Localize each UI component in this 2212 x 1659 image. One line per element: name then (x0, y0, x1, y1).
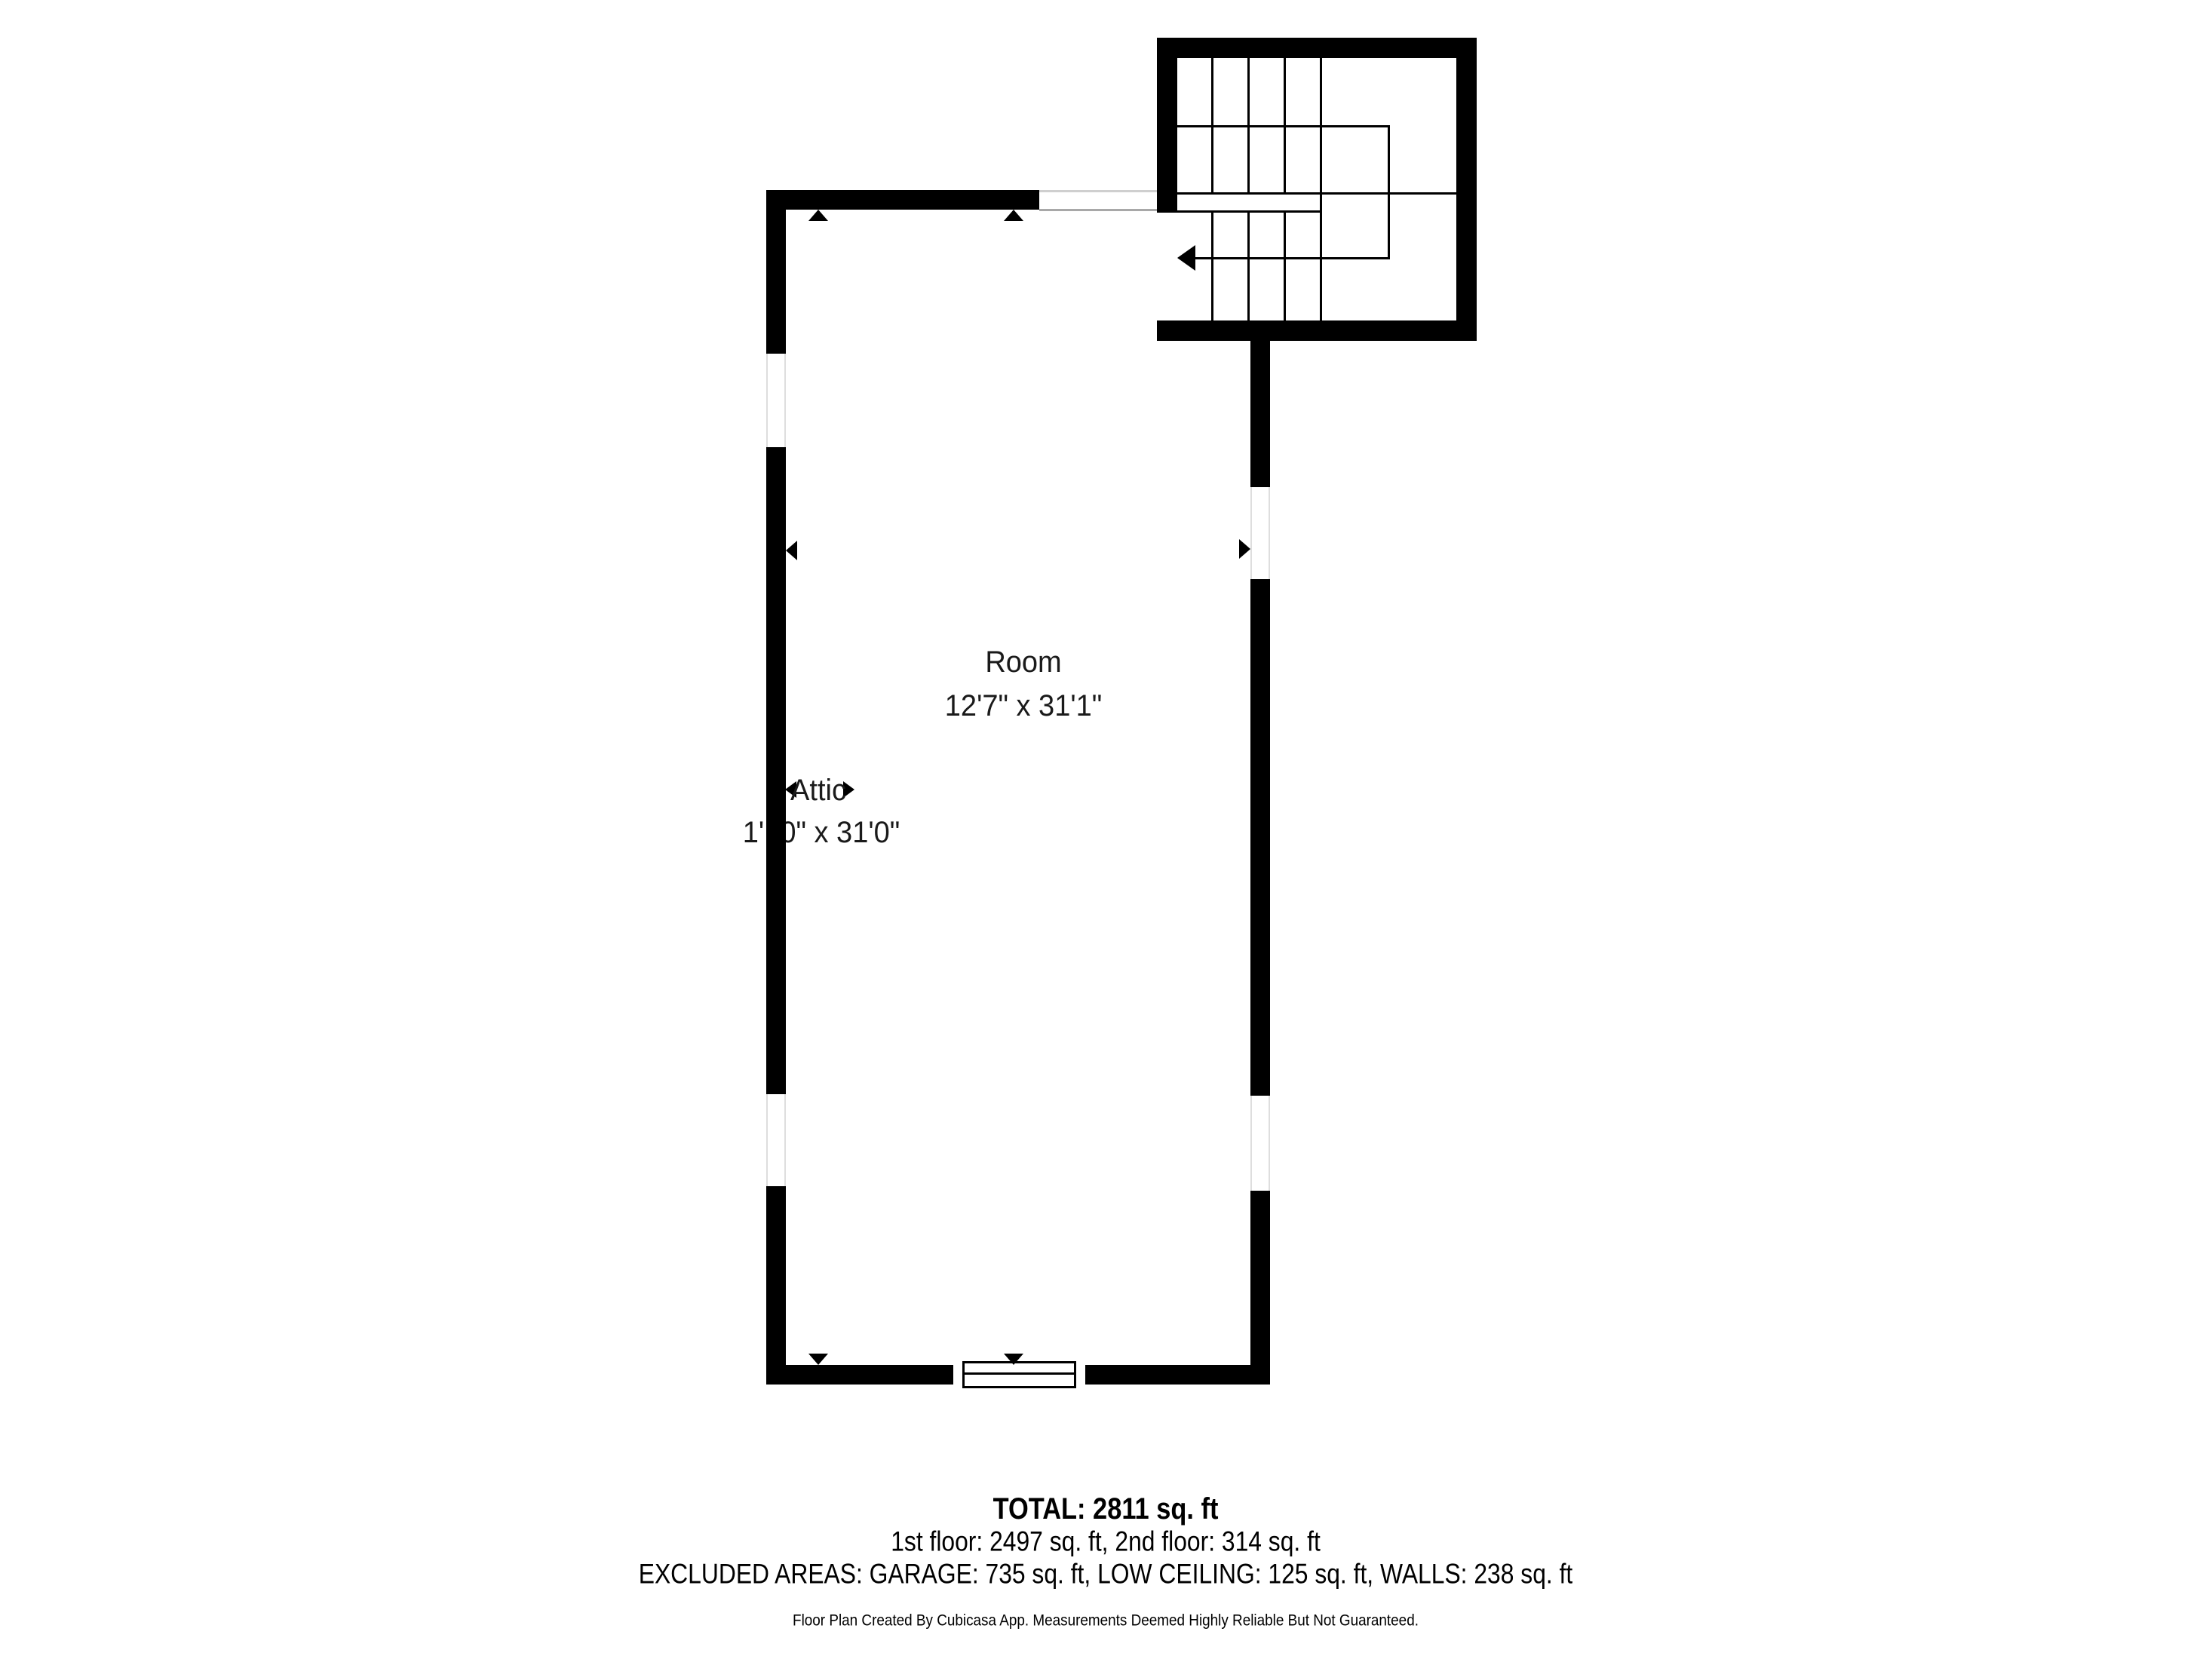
stair-wall-top (1157, 38, 1477, 58)
stair-landing-divider (1320, 58, 1322, 320)
room-wall-top (766, 190, 1039, 210)
stair-direction-arrow-icon (1177, 245, 1195, 271)
attic-name-label: Attic (790, 775, 846, 805)
stair-wall-left (1157, 38, 1177, 213)
stair-tread-line (1247, 213, 1250, 320)
up-arrow-icon (808, 210, 828, 221)
room-wall-right-upper (1250, 341, 1270, 487)
window-left-upper (766, 354, 786, 447)
excluded-areas-text: EXCLUDED AREAS: GARAGE: 735 sq. ft, LOW … (639, 1560, 1573, 1588)
stair-walkline-upper (1177, 125, 1390, 127)
room-name-label: Room (985, 647, 1061, 677)
stair-wall-right (1456, 38, 1477, 341)
window-bottom-frame (962, 1361, 1076, 1388)
room-wall-right-lower (1250, 1191, 1270, 1365)
left-arrow-icon (786, 541, 797, 560)
window-right-lower (1250, 1096, 1270, 1191)
up-arrow-icon (1004, 210, 1023, 221)
stair-wall-bottom (1157, 320, 1477, 341)
window-right-upper (1250, 487, 1270, 579)
stair-walkline-vertical (1388, 125, 1390, 259)
stair-landing-line-bottom (1177, 210, 1322, 213)
room-wall-right-middle (1250, 579, 1270, 1096)
room-wall-left-upper (766, 190, 786, 354)
stair-tread-line (1211, 213, 1213, 320)
room-wall-left-middle (766, 447, 786, 1094)
room-dimensions-label: 12'7" x 31'1" (945, 691, 1102, 721)
stair-walkline-lower (1192, 257, 1390, 259)
stair-tread-line (1284, 213, 1286, 320)
stair-landing-line-top (1177, 192, 1456, 195)
right-arrow-icon (1239, 539, 1250, 559)
down-arrow-icon (808, 1354, 828, 1365)
down-arrow-icon (1004, 1354, 1023, 1365)
room-wall-left-lower (766, 1186, 786, 1385)
floor-plan-canvas: Room 12'7" x 31'1" Attic 1'10" x 31'0" T… (0, 0, 2212, 1659)
window-left-lower (766, 1094, 786, 1186)
total-area-text: TOTAL: 2811 sq. ft (993, 1494, 1219, 1524)
window-bottom-sash-line (965, 1372, 1074, 1375)
floor-areas-text: 1st floor: 2497 sq. ft, 2nd floor: 314 s… (891, 1528, 1321, 1556)
disclaimer-text: Floor Plan Created By Cubicasa App. Meas… (793, 1613, 1419, 1629)
wall-opening (1039, 190, 1157, 211)
